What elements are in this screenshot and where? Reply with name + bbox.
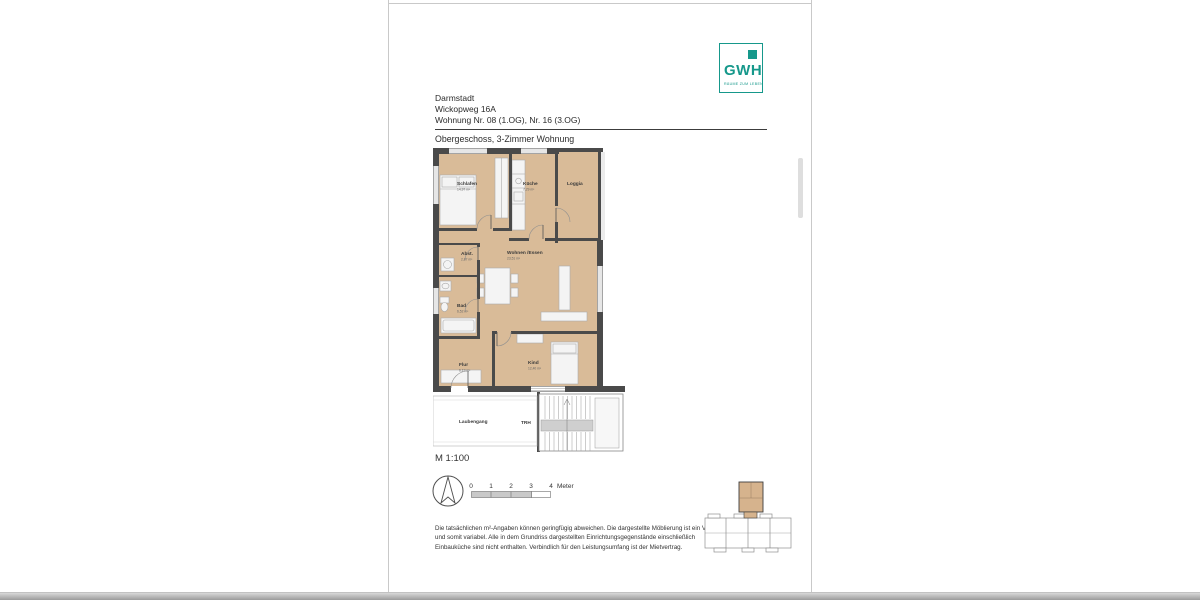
scalebar-tick-0: 0 bbox=[469, 483, 473, 490]
address-block: Darmstadt Wickopweg 16A Wohnung Nr. 08 (… bbox=[435, 93, 580, 126]
minimap-building bbox=[705, 514, 791, 552]
scale-label: M 1:100 bbox=[435, 453, 469, 464]
room-area-flur: 6,19 m² bbox=[459, 369, 471, 373]
room-area-kueche: 7,29 m² bbox=[523, 188, 535, 192]
room-area-schlafen: 14,97 m² bbox=[457, 188, 471, 192]
scalebar-tick-2: 2 bbox=[509, 483, 513, 490]
room-label-loggia: Loggia bbox=[567, 181, 583, 187]
room-label-wohnen: Wohnen /Essen bbox=[507, 250, 543, 256]
scalebar-unit: Meter bbox=[557, 483, 574, 490]
unit-line: Wohnung Nr. 08 (1.OG), Nr. 16 (3.OG) bbox=[435, 115, 580, 126]
room-label-schlafen: Schlafen bbox=[457, 181, 477, 187]
scrollbar-thumb[interactable] bbox=[798, 158, 803, 218]
room-label-kind: Kind bbox=[528, 360, 539, 366]
bottom-bar bbox=[0, 592, 1200, 600]
minimap-highlighted-unit bbox=[739, 482, 763, 518]
room-label-kueche: Küche bbox=[523, 181, 538, 187]
room-label-abst: Abst. bbox=[461, 251, 473, 257]
logo-text: GWH bbox=[724, 63, 762, 79]
street-line: Wickopweg 16A bbox=[435, 104, 580, 115]
north-arrow-icon bbox=[431, 474, 465, 508]
header-divider bbox=[435, 129, 767, 130]
scale-bar-graphic bbox=[471, 491, 551, 498]
scalebar-tick-1: 1 bbox=[489, 483, 493, 490]
room-area-wohnen: 23,51 m² bbox=[507, 257, 521, 261]
room-area-kind: 12,40 m² bbox=[528, 367, 542, 371]
gwh-logo: GWH RÄUME ZUM LEBEN bbox=[719, 43, 763, 93]
stairwell bbox=[539, 394, 623, 451]
room-area-bad: 6,52 m² bbox=[457, 310, 469, 314]
logo-square-icon bbox=[748, 50, 757, 59]
room-label-trh: TRH bbox=[521, 420, 531, 426]
document-page: GWH RÄUME ZUM LEBEN Darmstadt Wickopweg … bbox=[388, 0, 812, 600]
room-label-bad: Bad bbox=[457, 303, 466, 309]
logo-tagline: RÄUME ZUM LEBEN bbox=[724, 82, 763, 86]
room-label-laubengang: Laubengang bbox=[459, 419, 488, 425]
plan-subtitle: Obergeschoss, 3-Zimmer Wohnung bbox=[435, 134, 574, 144]
site-overview-map bbox=[704, 476, 792, 554]
disclaimer-text: Die tatsächlichen m²-Angaben können geri… bbox=[435, 524, 731, 552]
city-line: Darmstadt bbox=[435, 93, 580, 104]
floorplan-drawing: Schlafen 14,97 m² Küche 7,29 m² Loggia A… bbox=[433, 148, 625, 458]
scalebar-tick-4: 4 bbox=[549, 483, 553, 490]
room-area-abst: 2,87 m² bbox=[461, 258, 473, 262]
room-label-flur: Flur bbox=[459, 362, 468, 368]
scalebar-tick-3: 3 bbox=[529, 483, 533, 490]
